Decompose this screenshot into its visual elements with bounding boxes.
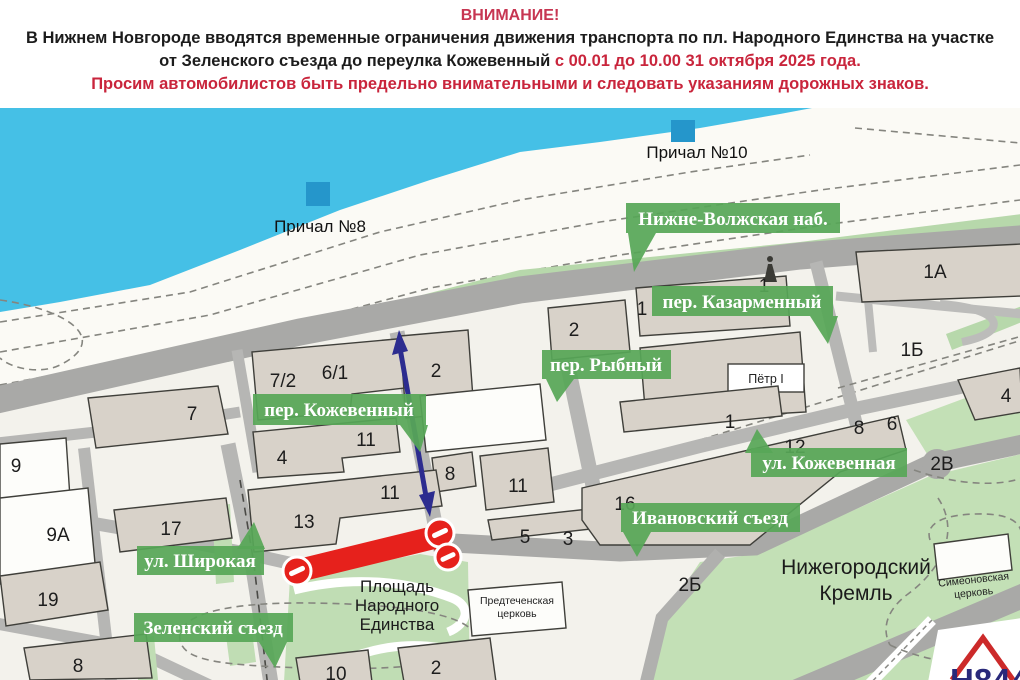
building-number: 2	[431, 658, 442, 679]
building-number: 17	[160, 519, 181, 540]
building-number: 2Б	[678, 575, 701, 596]
no-entry-sign	[283, 557, 311, 585]
notice-line-3: Просим автомобилистов быть предельно вни…	[0, 75, 1020, 94]
square-label-line: Площадь	[360, 577, 434, 596]
building-number: 2	[569, 320, 580, 341]
building-number: 1	[637, 299, 648, 320]
building-number: 6	[887, 414, 898, 435]
banner-label: Нижне-Волжская наб.	[638, 209, 828, 230]
building-number: 8	[854, 418, 865, 439]
building-number: 11	[356, 430, 376, 451]
street	[868, 300, 873, 352]
banner-label: пер. Кожевенный	[264, 400, 414, 421]
banner-label: Зеленский съезд	[143, 618, 283, 639]
monument-head	[767, 256, 773, 262]
building-number: 2В	[930, 454, 953, 475]
notice-line-1: В Нижнем Новгороде вводятся временные ог…	[0, 29, 1020, 48]
building-number: 3	[563, 529, 574, 550]
notice-title: ВНИМАНИЕ!	[0, 7, 1020, 25]
building-number: 10	[325, 664, 346, 680]
no-entry-sign	[435, 544, 461, 570]
kremlin-label-line: Кремль	[819, 582, 892, 605]
building-number: 4	[1001, 386, 1012, 407]
pier-8-marker	[306, 182, 330, 206]
banner-label: ул. Кожевенная	[762, 453, 895, 474]
banner-label: ул. Широкая	[144, 551, 256, 572]
building-number: 5	[520, 527, 531, 548]
building	[420, 384, 546, 452]
building-number: 4	[277, 448, 288, 469]
building-number: 8	[445, 464, 456, 485]
peter-monument-label: Пётр I	[748, 372, 784, 386]
notice-line-2-black: от Зеленского съезда до переулка Кожевен…	[159, 52, 550, 70]
building-number: 11	[508, 476, 528, 497]
notice-line-2-red: с 00.01 до 10.00 31 октября 2025 года.	[550, 52, 861, 70]
pier-10-label: Причал №10	[646, 143, 747, 162]
church-label-line: Предтеченская	[480, 595, 554, 607]
pier-8-label: Причал №8	[274, 217, 366, 236]
pier-10-marker	[671, 120, 695, 142]
notice-header: ВНИМАНИЕ! В Нижнем Новгороде вводятся вр…	[0, 0, 1020, 108]
building-number: 7	[187, 404, 198, 425]
building-number: 13	[293, 512, 314, 533]
square-label-line: Народного	[355, 596, 439, 615]
building-number: 9А	[46, 525, 70, 546]
square-label-line: Единства	[360, 615, 435, 634]
church-label-line: церковь	[497, 608, 537, 620]
building-number: 2	[431, 361, 442, 382]
building-number: 19	[37, 590, 58, 611]
notice-line-2: от Зеленского съезда до переулка Кожевен…	[0, 52, 1020, 71]
building-number: 6/1	[322, 363, 348, 384]
logo-text: Н844	[950, 662, 1020, 680]
building-number: 9	[11, 456, 22, 477]
kremlin-label-line: Нижегородский	[781, 556, 931, 579]
traffic-restriction-map: Причал №8 Причал №10 7 7/2 6/1 2 2 1 1 1…	[0, 0, 1020, 680]
building-number: 1Б	[900, 340, 923, 361]
building-number: 1А	[923, 262, 947, 283]
building-number: 7/2	[270, 371, 296, 392]
banner-label: Ивановский съезд	[632, 508, 788, 529]
building-number: 11	[380, 483, 400, 504]
building-number: 1	[725, 412, 736, 433]
banner-label: пер. Рыбный	[550, 355, 662, 376]
banner-label: пер. Казарменный	[663, 292, 822, 313]
building-number: 8	[73, 656, 84, 677]
